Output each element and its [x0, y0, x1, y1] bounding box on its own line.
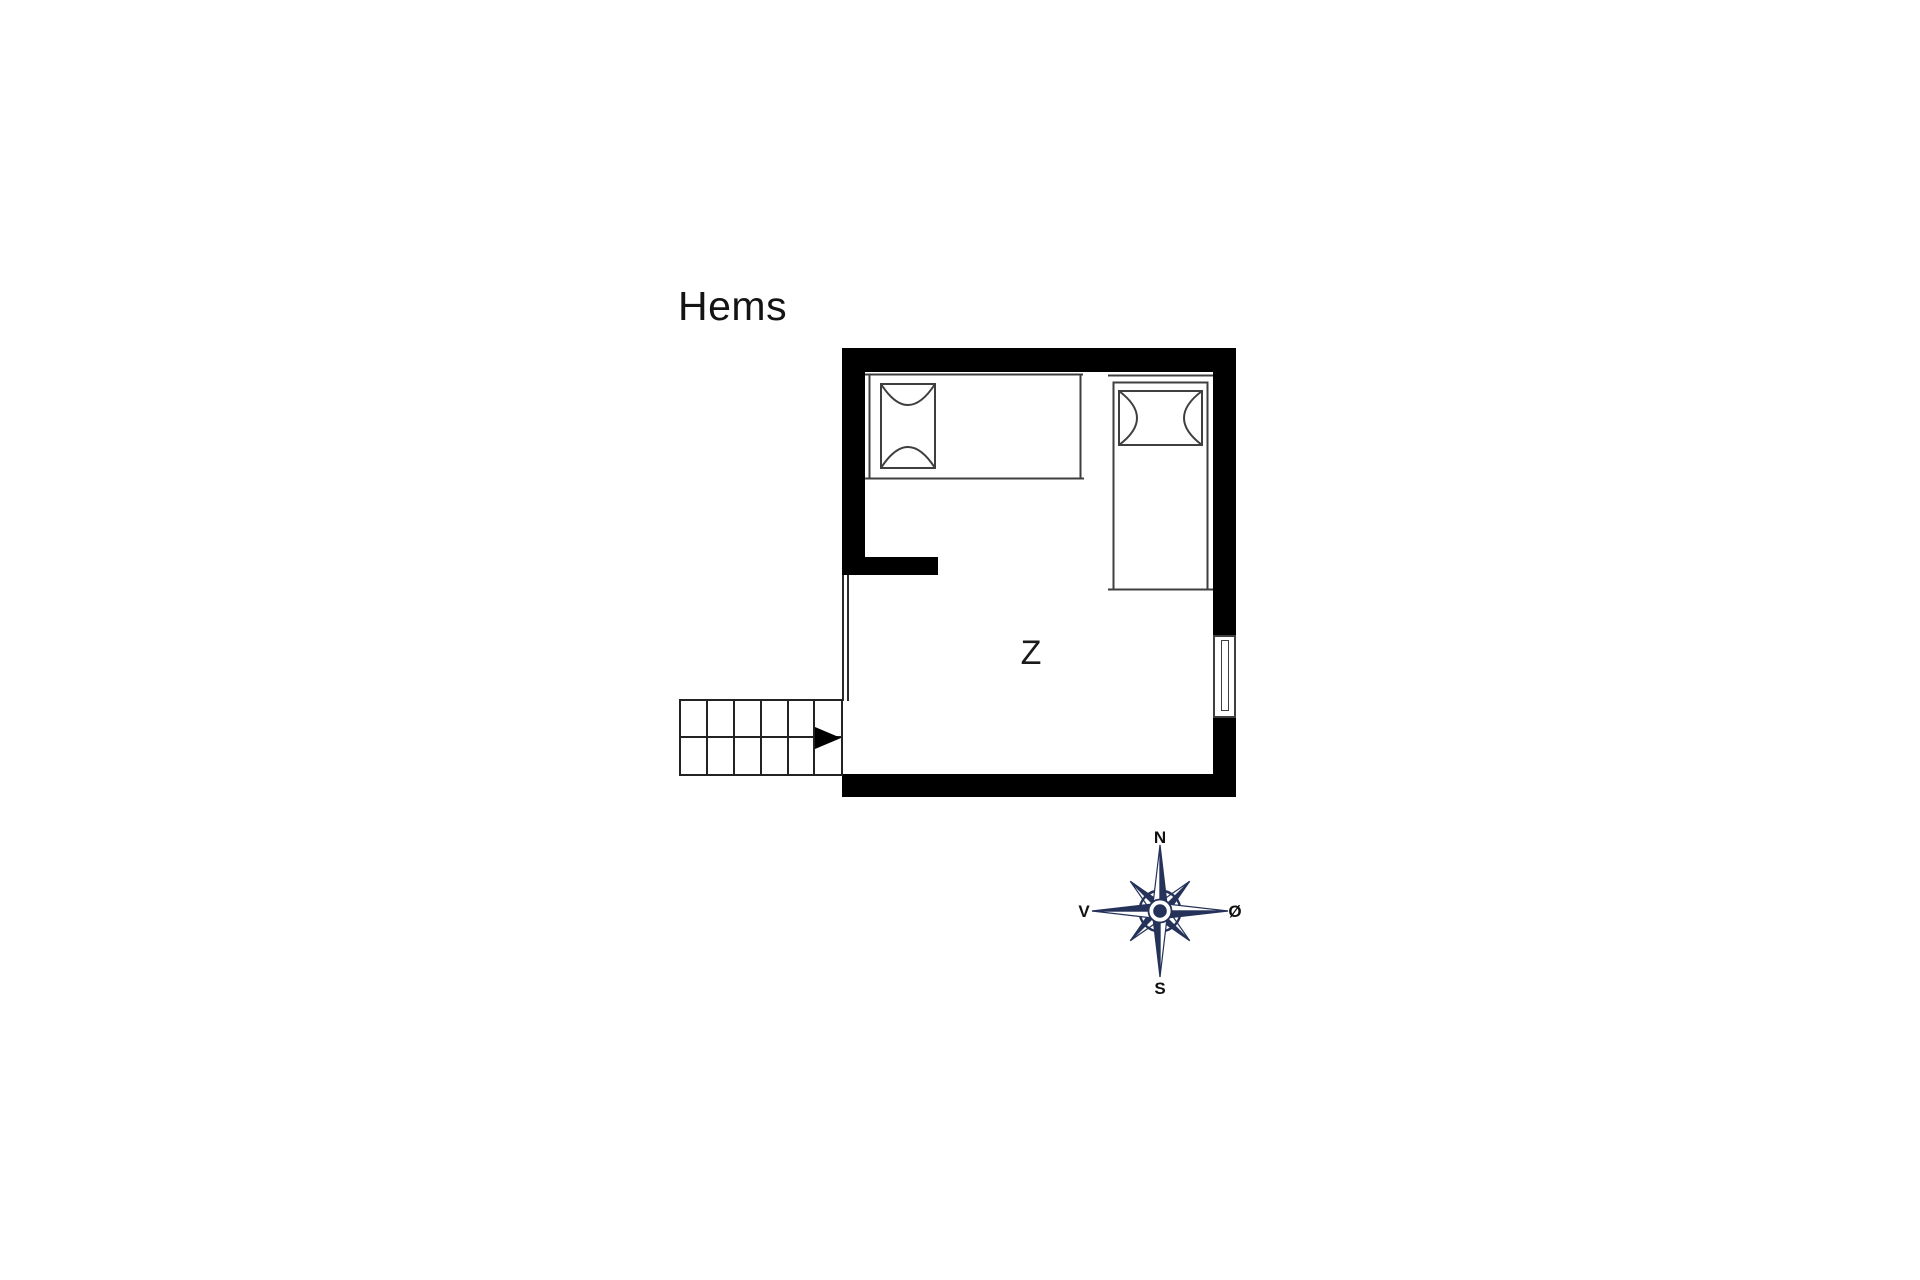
bed-vertical-icon — [1105, 368, 1217, 594]
floor-plan-canvas: Hems — [0, 0, 1920, 1280]
loft-edge-line — [842, 575, 844, 701]
wall-bottom — [842, 774, 1236, 797]
compass-label-south: S — [1154, 979, 1165, 998]
compass-label-east: Ø — [1228, 902, 1241, 921]
stairs — [679, 699, 843, 776]
window-pane — [1221, 640, 1229, 711]
window-symbol — [1213, 635, 1236, 718]
wall-interior-stub — [842, 557, 938, 575]
pillow-icon — [1119, 391, 1202, 445]
compass-rose-icon: N S V Ø — [1060, 816, 1260, 1006]
stairs-direction-arrow-icon — [815, 727, 841, 749]
loft-edge-line — [847, 575, 849, 701]
bed-horizontal-icon — [863, 370, 1085, 484]
plan-title: Hems — [678, 283, 787, 330]
compass-label-north: N — [1154, 828, 1166, 847]
room-label: Z — [1000, 634, 1062, 673]
pillow-icon — [881, 384, 935, 468]
compass-label-west: V — [1078, 902, 1090, 921]
wall-left — [842, 348, 865, 575]
